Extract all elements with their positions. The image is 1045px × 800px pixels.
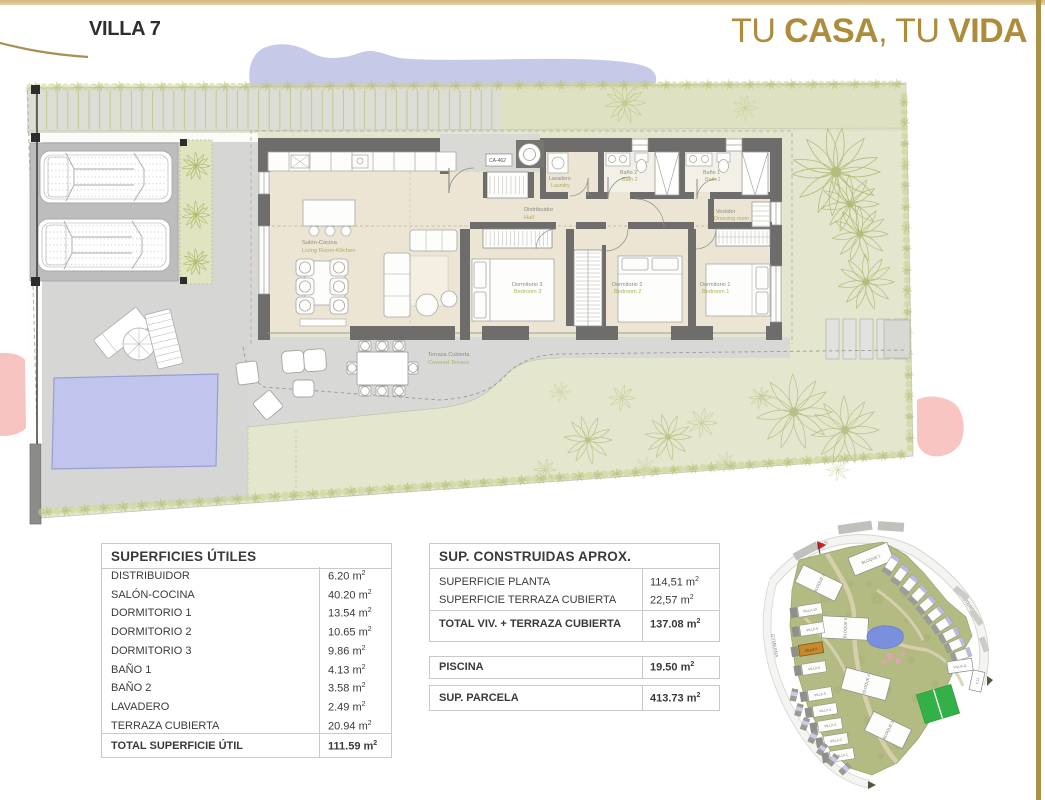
svg-text:CA-462: CA-462 xyxy=(489,158,506,164)
svg-text:Bedroom 2: Bedroom 2 xyxy=(614,289,641,295)
svg-text:Bath 1: Bath 1 xyxy=(705,177,721,183)
svg-text:Baño 1: Baño 1 xyxy=(703,170,720,176)
svg-text:Lavadero: Lavadero xyxy=(549,176,571,182)
svg-text:Vestidor: Vestidor xyxy=(716,209,736,215)
svg-text:Dressing room: Dressing room xyxy=(714,216,750,222)
svg-text:Covered Terrace: Covered Terrace xyxy=(428,360,469,366)
svg-text:Distribuidor: Distribuidor xyxy=(524,207,553,213)
svg-text:Living Room-Kitchen: Living Room-Kitchen xyxy=(302,248,356,254)
svg-text:Laundry: Laundry xyxy=(551,183,570,189)
svg-text:Terraza Cubierta: Terraza Cubierta xyxy=(428,352,470,358)
svg-text:Salón-Cocina: Salón-Cocina xyxy=(302,240,338,246)
svg-text:Dormitorio 3: Dormitorio 3 xyxy=(512,282,542,288)
svg-text:Dormitorio 2: Dormitorio 2 xyxy=(612,282,642,288)
svg-text:Dormitorio 1: Dormitorio 1 xyxy=(700,282,730,288)
svg-text:Bedroom 3: Bedroom 3 xyxy=(514,289,541,295)
svg-text:Hall: Hall xyxy=(524,215,534,221)
svg-text:Baño 2: Baño 2 xyxy=(620,170,637,176)
svg-text:Bedroom 1: Bedroom 1 xyxy=(702,289,729,295)
